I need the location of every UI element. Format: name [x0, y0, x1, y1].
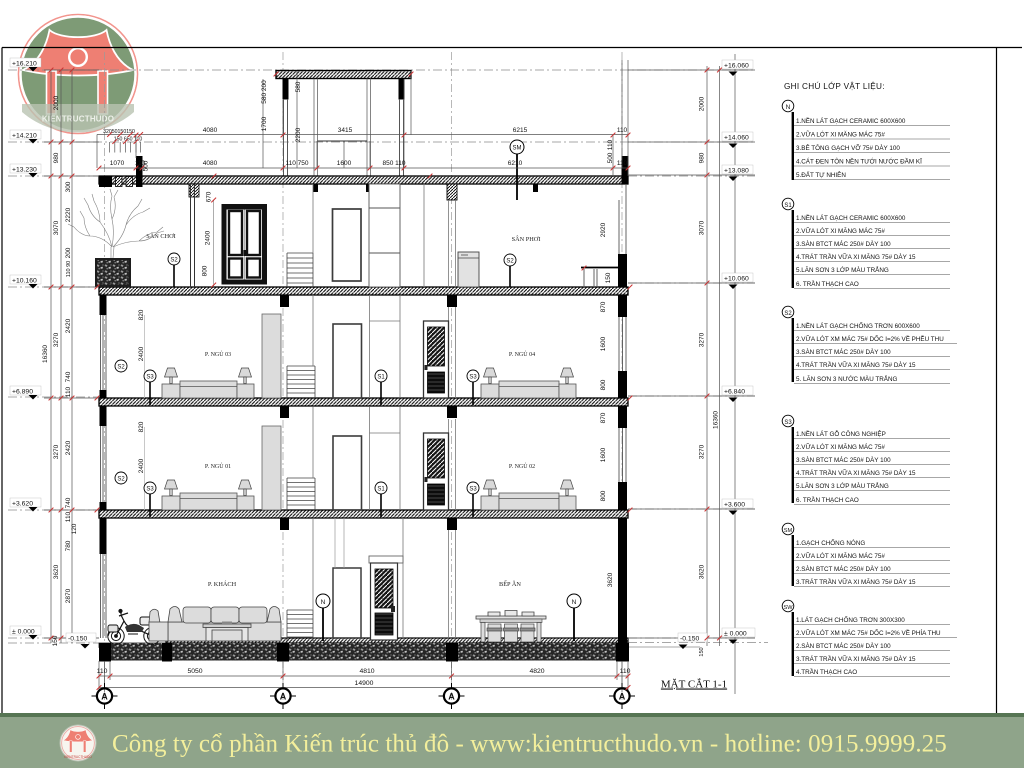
svg-text:N: N [572, 599, 577, 606]
svg-text:S3: S3 [469, 375, 477, 381]
svg-text:2870: 2870 [65, 588, 72, 603]
svg-text:110: 110 [617, 127, 628, 134]
svg-text:740: 740 [65, 497, 72, 508]
svg-text:6215: 6215 [513, 127, 528, 134]
svg-text:S2: S2 [506, 259, 514, 265]
svg-text:1700: 1700 [261, 116, 268, 131]
svg-text:3270: 3270 [53, 444, 60, 459]
svg-text:1600: 1600 [337, 160, 352, 167]
svg-text:S1: S1 [784, 203, 792, 209]
svg-text:4810: 4810 [359, 668, 374, 675]
svg-text:2000: 2000 [699, 96, 706, 111]
svg-text:2920: 2920 [600, 222, 607, 237]
svg-text:120: 120 [71, 523, 78, 534]
svg-text:870: 870 [600, 412, 607, 423]
svg-text:4820: 4820 [529, 668, 544, 675]
svg-text:+13.230: +13.230 [12, 167, 37, 174]
svg-text:850 110: 850 110 [382, 160, 405, 167]
svg-text:1070: 1070 [110, 160, 125, 167]
svg-text:± 0.000: ± 0.000 [12, 629, 35, 636]
svg-text:3620: 3620 [607, 572, 614, 587]
svg-text:KIENTRUCTHUDO: KIENTRUCTHUDO [64, 755, 92, 759]
svg-text:110 90: 110 90 [66, 261, 72, 277]
svg-text:110 750: 110 750 [285, 160, 308, 167]
svg-text:3415: 3415 [338, 127, 353, 134]
svg-text:5050: 5050 [187, 668, 202, 675]
svg-text:+16.060: +16.060 [724, 63, 749, 70]
svg-text:N: N [786, 104, 791, 111]
svg-text:3.SÀN BTCT MÁC 250# DÀY 100: 3.SÀN BTCT MÁC 250# DÀY 100 [796, 239, 891, 248]
svg-text:580: 580 [295, 81, 302, 92]
svg-text:+16.210: +16.210 [12, 61, 37, 68]
svg-text:110: 110 [65, 511, 72, 522]
svg-text:S2: S2 [117, 365, 125, 371]
svg-text:2.SÀN BTCT MÁC 250# DÀY 100: 2.SÀN BTCT MÁC 250# DÀY 100 [796, 564, 891, 573]
svg-text:150: 150 [52, 635, 59, 646]
svg-text:2000: 2000 [53, 95, 60, 110]
svg-text:16360: 16360 [42, 345, 49, 363]
svg-text:MẶT CẮT 1-1: MẶT CẮT 1-1 [661, 678, 727, 691]
svg-text:S3: S3 [146, 375, 154, 381]
svg-text:870: 870 [600, 301, 607, 312]
svg-text:110: 110 [620, 668, 631, 675]
svg-text:820: 820 [138, 309, 145, 320]
svg-text:2420: 2420 [65, 440, 72, 455]
svg-text:3070: 3070 [53, 220, 60, 235]
svg-text:KIENTRUCTHUDO: KIENTRUCTHUDO [42, 115, 114, 124]
svg-text:N: N [321, 599, 326, 606]
svg-text:4080: 4080 [203, 160, 218, 167]
svg-text:2.SÀN BTCT MÁC 250# DÀY 100: 2.SÀN BTCT MÁC 250# DÀY 100 [796, 641, 891, 650]
svg-text:3270: 3270 [699, 444, 706, 459]
svg-text:780: 780 [65, 540, 72, 551]
svg-text:2.VỮA LÓT XI MĂNG MÁC 75#: 2.VỮA LÓT XI MĂNG MÁC 75# [796, 130, 885, 139]
svg-text:P. NGỦ 03: P. NGỦ 03 [205, 350, 231, 358]
svg-text:2400: 2400 [138, 346, 145, 361]
svg-text:110: 110 [97, 668, 108, 675]
svg-text:800: 800 [600, 490, 607, 501]
svg-text:110: 110 [65, 386, 72, 397]
svg-text:SW: SW [783, 605, 793, 611]
svg-text:SM: SM [784, 528, 793, 534]
svg-text:BẾP ĂN: BẾP ĂN [499, 580, 521, 588]
svg-text:740: 740 [65, 371, 72, 382]
svg-text:3.BÊ TÔNG GẠCH VỠ 75# DÀY 100: 3.BÊ TÔNG GẠCH VỠ 75# DÀY 100 [796, 143, 900, 152]
svg-text:800: 800 [600, 379, 607, 390]
svg-text:+14.210: +14.210 [12, 133, 37, 140]
svg-text:16360: 16360 [713, 411, 720, 429]
svg-text:S2: S2 [170, 258, 178, 264]
svg-text:3620: 3620 [53, 564, 60, 579]
svg-text:800: 800 [202, 265, 209, 276]
svg-text:+10.160: +10.160 [12, 278, 37, 285]
svg-text:980: 980 [53, 152, 60, 163]
svg-text:3270: 3270 [699, 332, 706, 347]
svg-text:500: 500 [607, 152, 614, 163]
svg-text:110: 110 [607, 139, 614, 150]
svg-text:300: 300 [65, 181, 72, 192]
svg-text:150: 150 [605, 272, 612, 283]
svg-text:820: 820 [138, 421, 145, 432]
svg-text:670: 670 [206, 191, 213, 202]
svg-text:3.SÀN BTCT MÁC 250# DÀY 100: 3.SÀN BTCT MÁC 250# DÀY 100 [796, 455, 891, 464]
svg-text:5.LĂN SƠN 3 LỚP MÀU TRẮNG: 5.LĂN SƠN 3 LỚP MÀU TRẮNG [796, 481, 889, 490]
svg-text:+10.060: +10.060 [724, 276, 749, 283]
svg-text:-0.150: -0.150 [680, 636, 699, 643]
svg-text:3070: 3070 [699, 220, 706, 235]
svg-text:1600: 1600 [600, 447, 607, 462]
svg-text:S3: S3 [784, 420, 792, 426]
svg-text:2220: 2220 [65, 207, 72, 222]
svg-text:6210: 6210 [508, 160, 523, 167]
svg-text:SÂN PHƠI: SÂN PHƠI [512, 235, 541, 243]
svg-text:5. LĂN SƠN 3 NƯỚC MÀU TRẮNG: 5. LĂN SƠN 3 NƯỚC MÀU TRẮNG [796, 374, 898, 383]
svg-text:P. NGỦ 01: P. NGỦ 01 [205, 462, 231, 470]
svg-text:4080: 4080 [203, 127, 218, 134]
svg-text:P. NGỦ 04: P. NGỦ 04 [509, 350, 535, 358]
svg-text:2.VỮA LÓT XI MĂNG MÁC 75#: 2.VỮA LÓT XI MĂNG MÁC 75# [796, 442, 885, 451]
svg-text:+6.840: +6.840 [724, 389, 745, 396]
svg-text:5.LĂN SƠN 3 LỚP MÀU TRẮNG: 5.LĂN SƠN 3 LỚP MÀU TRẮNG [796, 265, 889, 274]
svg-text:3.SÀN BTCT MÁC 250# DÀY 100: 3.SÀN BTCT MÁC 250# DÀY 100 [796, 347, 891, 356]
svg-text:2400: 2400 [138, 458, 145, 473]
svg-text:2420: 2420 [65, 318, 72, 333]
svg-text:2200: 2200 [295, 127, 302, 142]
svg-text:200: 200 [65, 247, 72, 258]
svg-text:2400: 2400 [205, 230, 212, 245]
svg-text:+13.080: +13.080 [724, 168, 749, 175]
svg-text:P. NGỦ 02: P. NGỦ 02 [509, 462, 535, 470]
svg-text:14900: 14900 [355, 680, 374, 687]
svg-text:980: 980 [699, 152, 706, 163]
svg-text:1600: 1600 [600, 336, 607, 351]
svg-text:2.VỮA LÓT XI MĂNG MÁC 75#: 2.VỮA LÓT XI MĂNG MÁC 75# [796, 226, 885, 235]
svg-text:150: 150 [699, 647, 705, 656]
svg-text:110: 110 [617, 160, 628, 167]
svg-text:GHI CHÚ LỚP VẬT LIỆU:: GHI CHÚ LỚP VẬT LIỆU: [784, 81, 885, 91]
svg-text:+14.060: +14.060 [724, 135, 749, 142]
svg-text:+3.600: +3.600 [724, 502, 745, 509]
svg-text:S1: S1 [377, 375, 385, 381]
svg-text:+6.890: +6.890 [12, 389, 33, 396]
svg-text:Công ty cổ phần Kiến trúc thủ: Công ty cổ phần Kiến trúc thủ đô - www:k… [112, 731, 947, 758]
svg-text:P. KHÁCH: P. KHÁCH [208, 580, 237, 588]
svg-text:± 0.000: ± 0.000 [724, 631, 747, 638]
svg-text:SM: SM [513, 146, 522, 152]
svg-text:3620: 3620 [699, 564, 706, 579]
svg-text:S2: S2 [784, 311, 792, 317]
svg-text:3270: 3270 [53, 332, 60, 347]
svg-text:-0.150: -0.150 [68, 636, 87, 643]
svg-text:2.VỮA LÓT XI MĂNG MÁC 75#: 2.VỮA LÓT XI MĂNG MÁC 75# [796, 551, 885, 560]
svg-text:+3.620: +3.620 [12, 501, 33, 508]
svg-text:SÂN CHƠI: SÂN CHƠI [146, 232, 176, 240]
svg-text:580 200: 580 200 [261, 80, 268, 104]
